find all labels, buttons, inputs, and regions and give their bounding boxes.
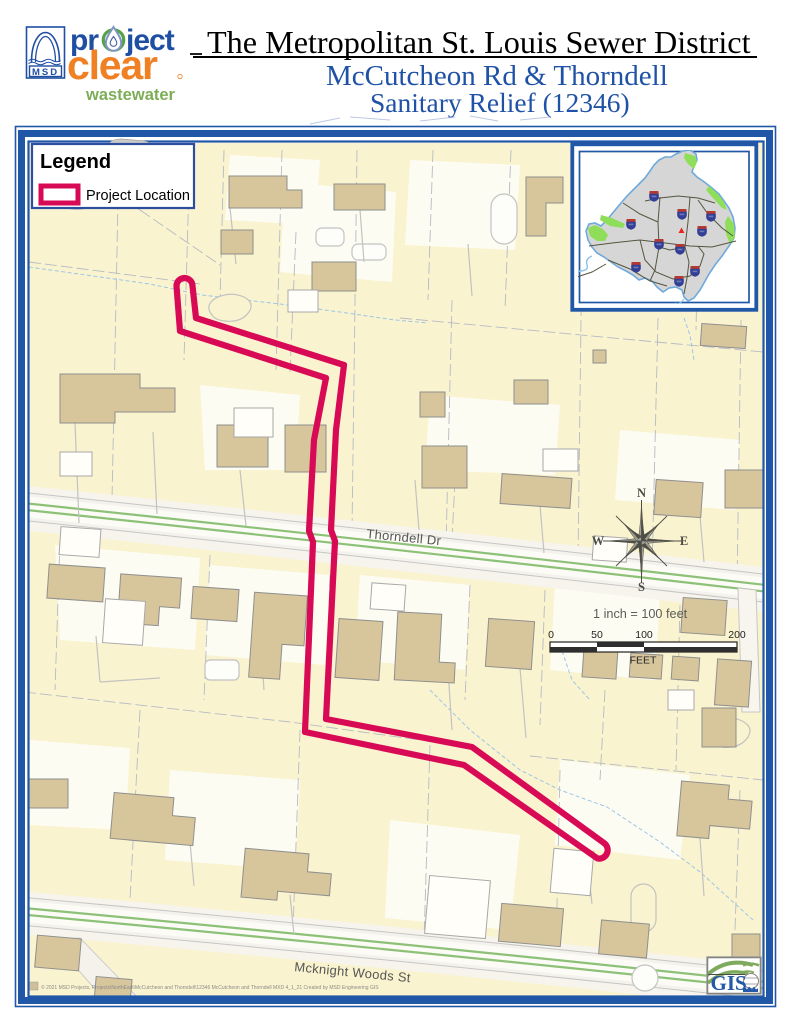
svg-text:FEET: FEET bbox=[630, 655, 657, 667]
svg-text:W: W bbox=[592, 534, 605, 548]
svg-text:200: 200 bbox=[728, 629, 746, 641]
svg-text:GIS: GIS bbox=[711, 971, 747, 995]
svg-text:1 inch = 100 feet: 1 inch = 100 feet bbox=[593, 607, 688, 621]
svg-text:S: S bbox=[638, 580, 645, 594]
svg-text:E: E bbox=[680, 534, 688, 548]
svg-text:100: 100 bbox=[635, 629, 653, 641]
svg-text:0: 0 bbox=[548, 629, 554, 641]
svg-text:50: 50 bbox=[591, 629, 603, 641]
svg-text:© 2021 MSD Projects, Projects\: © 2021 MSD Projects, Projects\NorthEast\… bbox=[41, 984, 379, 991]
svg-text:Legend: Legend bbox=[40, 151, 111, 173]
svg-text:N: N bbox=[637, 486, 646, 500]
svg-text:Project Location: Project Location bbox=[86, 188, 190, 204]
